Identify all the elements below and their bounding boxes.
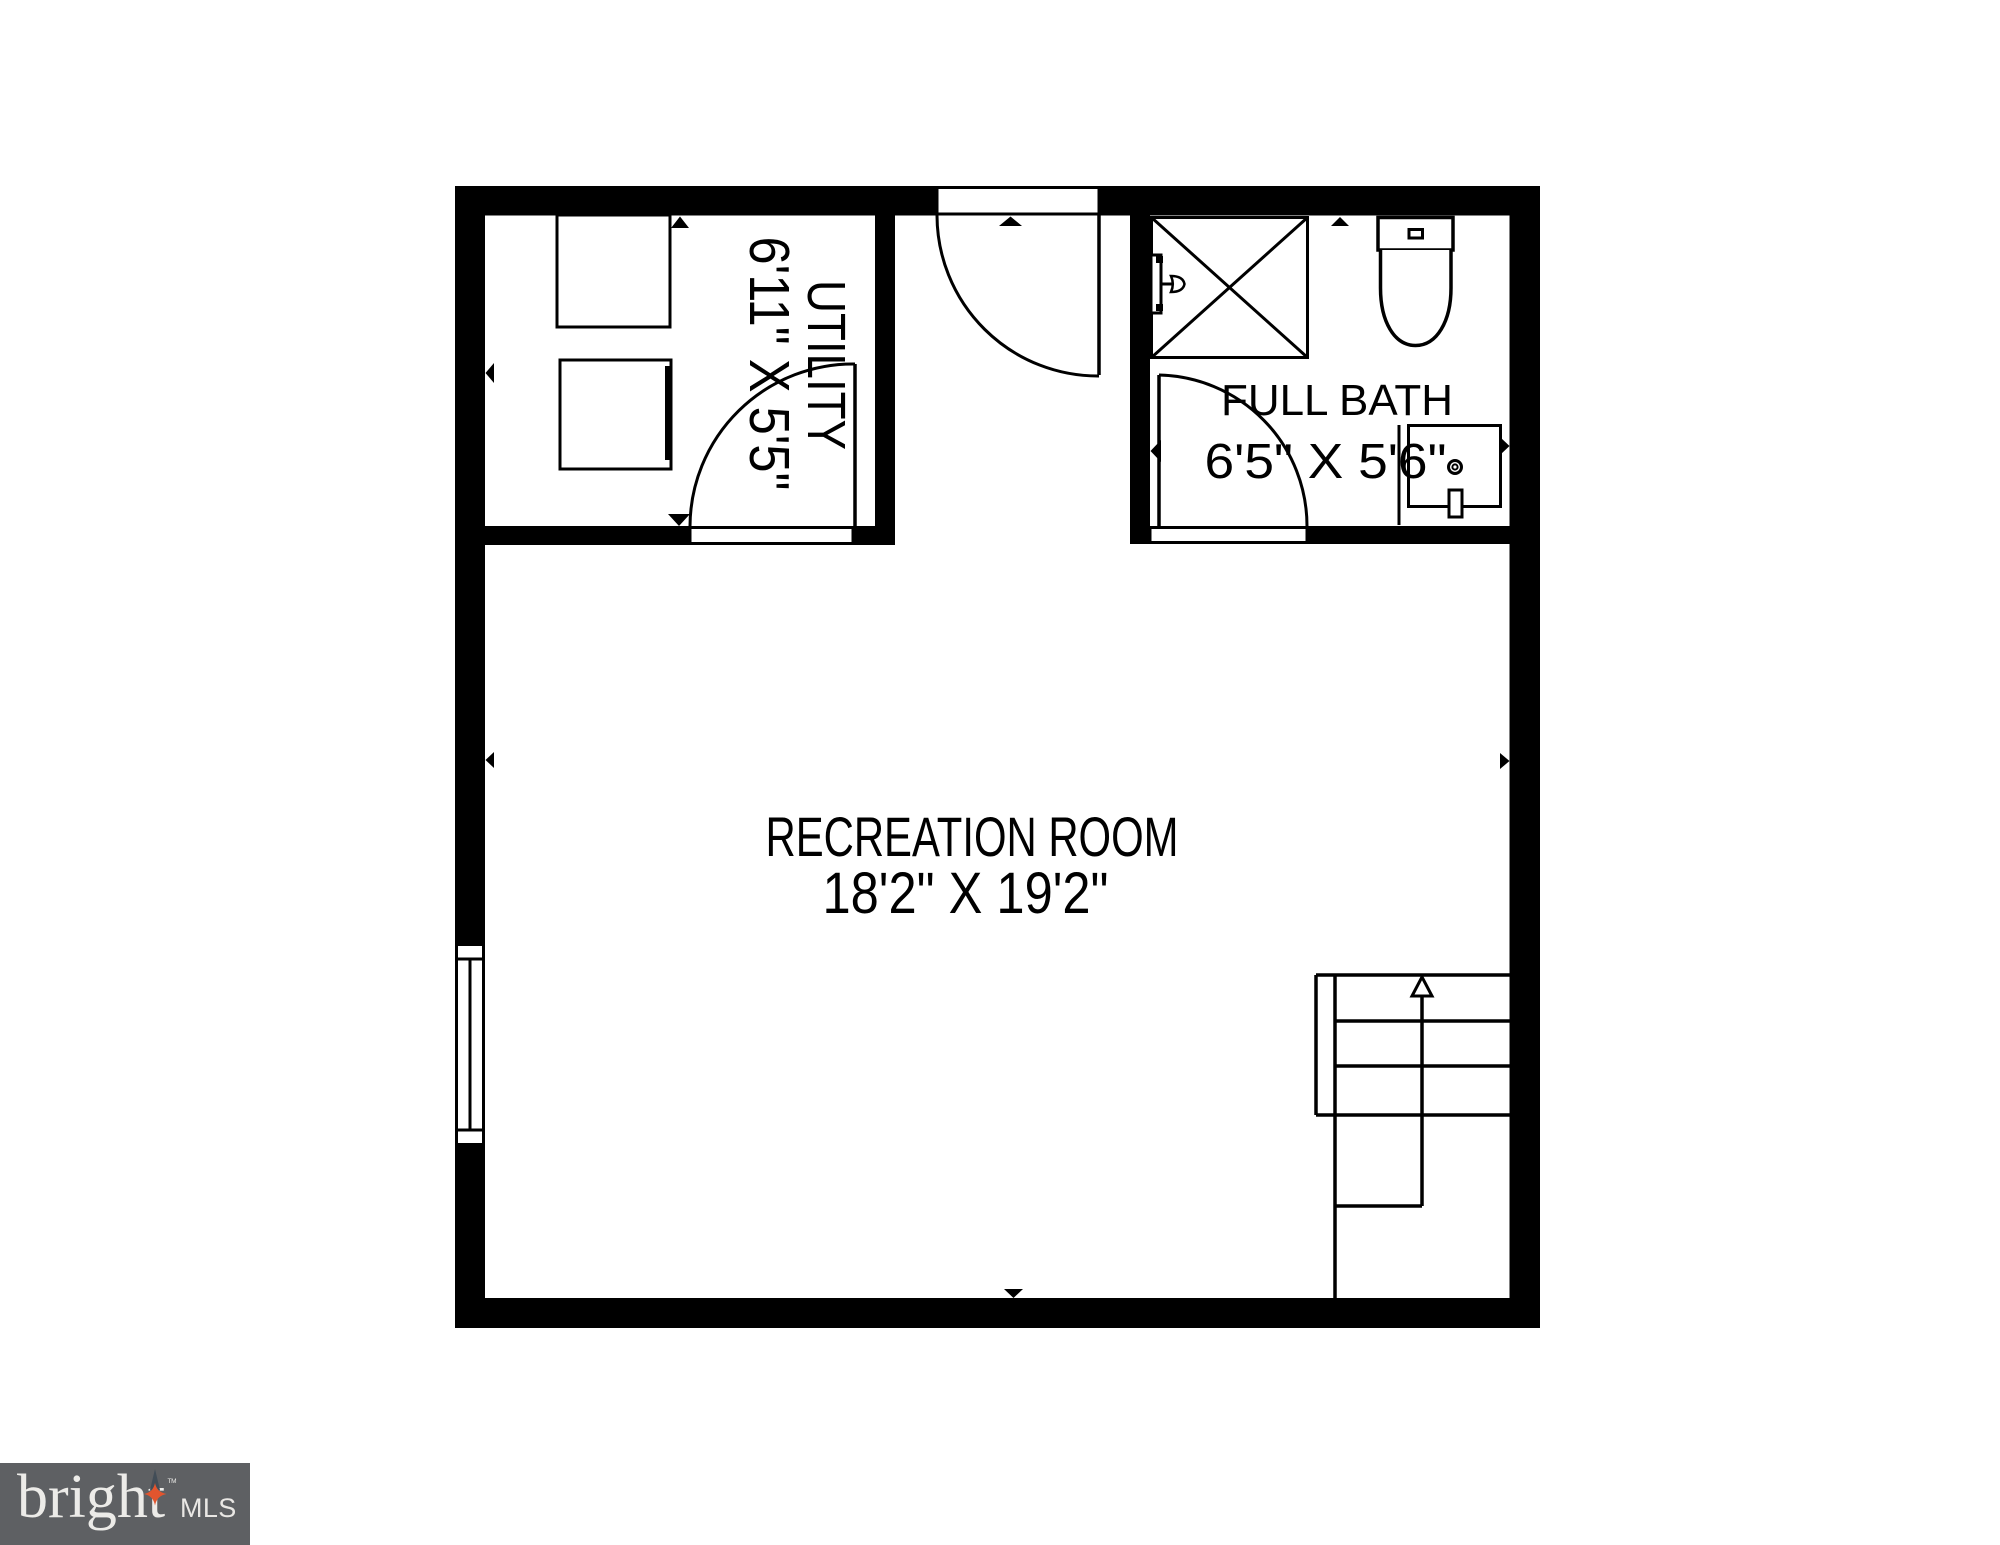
svg-text:18'2" X 19'2": 18'2" X 19'2" xyxy=(823,861,1109,926)
svg-text:RECREATION ROOM: RECREATION ROOM xyxy=(766,805,1179,868)
svg-text:6'11" X 5'5": 6'11" X 5'5" xyxy=(737,237,801,491)
svg-text:FULL BATH: FULL BATH xyxy=(1221,376,1453,425)
svg-text:UTILITY: UTILITY xyxy=(796,280,856,450)
svg-text:6'5" X 5'6": 6'5" X 5'6" xyxy=(1205,435,1447,489)
svg-text:TM: TM xyxy=(168,1478,177,1485)
svg-text:bright: bright xyxy=(17,1463,165,1531)
svg-text:MLS: MLS xyxy=(180,1493,237,1523)
